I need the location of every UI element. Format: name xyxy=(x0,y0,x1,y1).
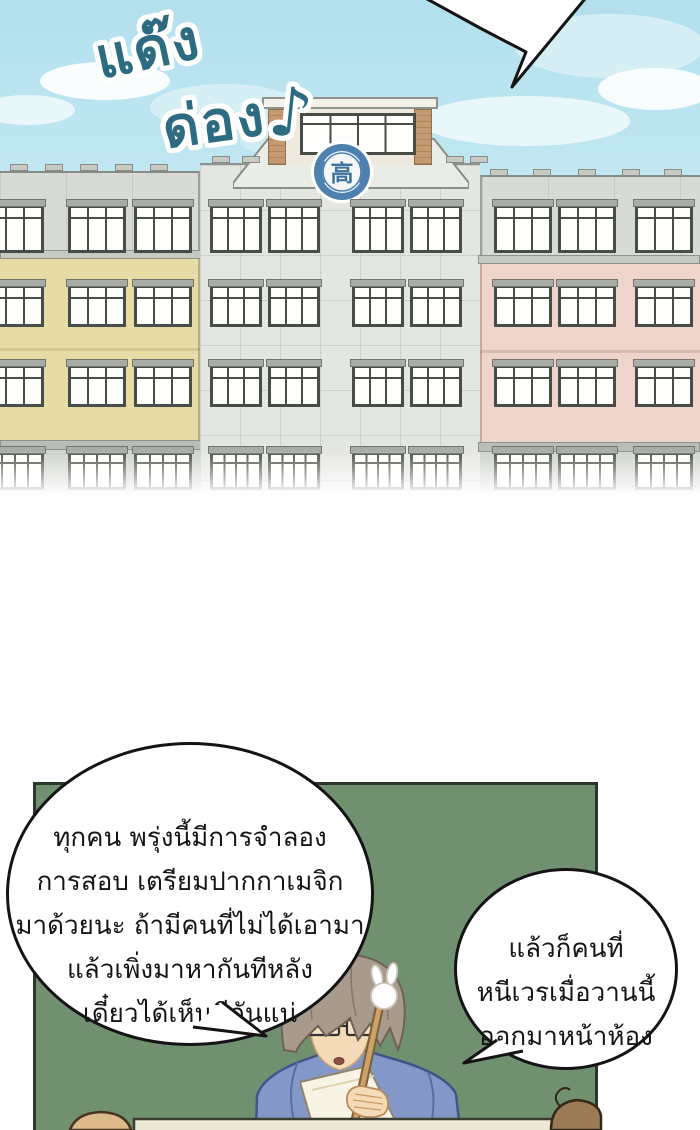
student-head-left xyxy=(70,1112,131,1130)
roof-parapet-block xyxy=(490,169,508,176)
speech-line: การสอบ เตรียมปากกาเมจิก xyxy=(15,860,364,904)
building-window xyxy=(410,285,462,327)
speech-bubble-tail xyxy=(450,1030,540,1075)
building-window xyxy=(0,205,44,253)
building-window xyxy=(635,365,693,407)
roof-parapet-block xyxy=(446,156,464,163)
speech-line: หนีเวรเมื่อวานนี้ xyxy=(477,971,656,1015)
building-window xyxy=(410,365,462,407)
building-window xyxy=(68,365,126,407)
building-window xyxy=(134,365,192,407)
building-window xyxy=(0,285,44,327)
roof-parapet-block xyxy=(578,169,596,176)
speech-line: มาด้วยนะ ถ้ามีคนที่ไม่ได้เอามา xyxy=(15,904,364,948)
building-window xyxy=(558,365,616,407)
building-window xyxy=(494,285,552,327)
building-window xyxy=(558,285,616,327)
building-window xyxy=(268,205,320,253)
right-wing-cornice xyxy=(478,255,700,264)
offscreen-speech-bubble-tail xyxy=(400,0,620,100)
school-emblem: 高 xyxy=(308,138,376,206)
building-window xyxy=(210,365,262,407)
building-window xyxy=(558,205,616,253)
building-window xyxy=(268,285,320,327)
building-window xyxy=(134,285,192,327)
building-window xyxy=(134,205,192,253)
building-window xyxy=(210,285,262,327)
building-window xyxy=(635,205,693,253)
building-window xyxy=(0,365,44,407)
roof-parapet-block xyxy=(80,164,98,171)
speech-bubble-tail xyxy=(175,992,285,1047)
building-window xyxy=(635,285,693,327)
white-fade xyxy=(0,450,700,502)
building-window xyxy=(68,285,126,327)
speech-line: แล้วก็คนที่ xyxy=(477,927,656,971)
roof-parapet-block xyxy=(533,169,551,176)
roof-parapet-block xyxy=(115,164,133,171)
roof-parapet-block xyxy=(150,164,168,171)
comic-page: 高 แด๊ง ด่อง♪ xyxy=(0,0,700,1130)
roof-parapet-block xyxy=(45,164,63,171)
building-window xyxy=(352,285,404,327)
brick-pillar xyxy=(414,109,432,165)
left-wing-floor-line xyxy=(0,348,200,351)
sfx-word: ด่อง xyxy=(158,83,269,162)
roof-parapet-block xyxy=(470,156,488,163)
building-window xyxy=(494,365,552,407)
building-window xyxy=(410,205,462,253)
emblem-character: 高 xyxy=(331,160,354,187)
building-window xyxy=(494,205,552,253)
music-note-icon: ♪ xyxy=(265,72,318,155)
teacher-mouth xyxy=(334,1058,344,1065)
speech-line: ทุกคน พรุ่งนี้มีการจำลอง xyxy=(15,816,364,860)
roof-parapet-block xyxy=(10,164,28,171)
speech-line: แล้วเพิ่งมาหากันทีหลัง xyxy=(15,948,364,992)
roof-parapet-block xyxy=(664,169,682,176)
building-window xyxy=(210,205,262,253)
building-window xyxy=(352,365,404,407)
building-window xyxy=(352,205,404,253)
building-window xyxy=(68,205,126,253)
building-window xyxy=(268,365,320,407)
roof-parapet-block xyxy=(622,169,640,176)
podium-desk xyxy=(134,1119,556,1130)
right-wing-floor-line xyxy=(480,350,700,353)
